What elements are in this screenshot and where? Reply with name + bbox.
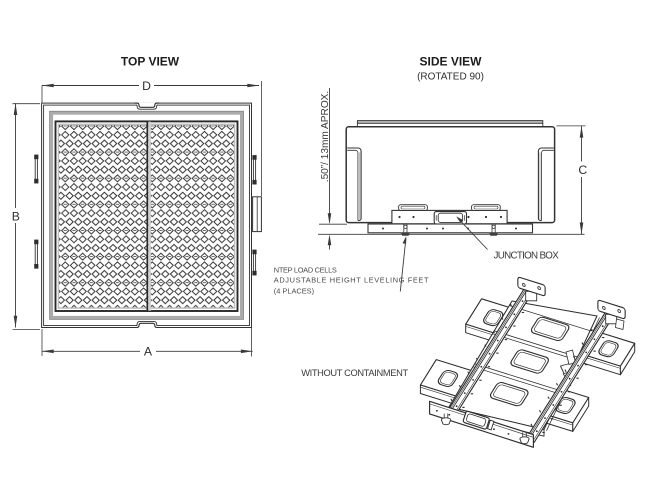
svg-text:ADJUSTABLE HEIGHT LEVELING FEE: ADJUSTABLE HEIGHT LEVELING FEET — [274, 276, 429, 285]
svg-text:D: D — [142, 79, 151, 93]
svg-text:NTEP LOAD CELLS: NTEP LOAD CELLS — [274, 266, 337, 275]
svg-text:SIDE VIEW: SIDE VIEW — [419, 55, 482, 69]
svg-text:WITHOUT CONTAINMENT: WITHOUT CONTAINMENT — [301, 368, 408, 378]
svg-text:(4 PLACES): (4 PLACES) — [274, 287, 314, 296]
svg-text:JUNCTION BOX: JUNCTION BOX — [494, 251, 560, 262]
svg-text:.50”/ 13mm APROX.: .50”/ 13mm APROX. — [320, 91, 331, 182]
svg-text:A: A — [144, 345, 153, 359]
svg-text:C: C — [578, 163, 587, 177]
svg-text:B: B — [12, 209, 20, 223]
svg-text:TOP VIEW: TOP VIEW — [121, 55, 180, 69]
svg-text:(ROTATED 90): (ROTATED 90) — [417, 72, 484, 83]
